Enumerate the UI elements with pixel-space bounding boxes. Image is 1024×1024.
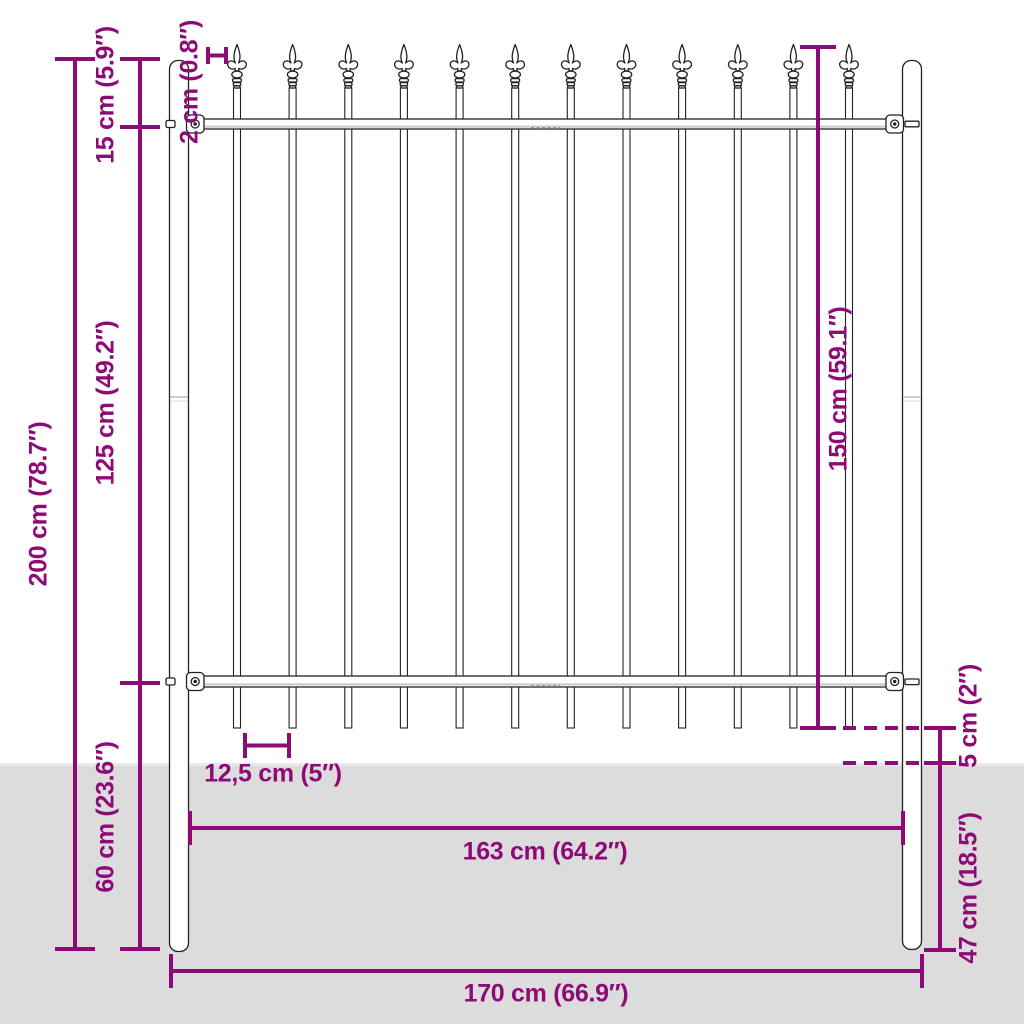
fence-bar	[456, 88, 463, 728]
post-joint-marks	[171, 397, 921, 401]
bottom-rail	[188, 676, 903, 687]
bars-group	[228, 45, 859, 729]
top-rail	[188, 119, 903, 129]
dim-label-bar-above-ground: 5 cm (2″)	[955, 664, 984, 768]
spear-finial-icon	[395, 45, 414, 89]
fence-bar	[289, 88, 296, 728]
spear-finial-icon	[840, 45, 859, 89]
rail-bolt	[905, 121, 919, 127]
fence-bar	[345, 88, 352, 728]
dim-label-overall-height: 200 cm (78.7″)	[25, 422, 54, 587]
fence-bar	[790, 88, 797, 728]
left-post	[170, 61, 189, 952]
spear-finial-icon	[450, 45, 469, 89]
fence-bar	[567, 88, 574, 728]
fence-bar	[623, 88, 630, 728]
dim-label-overall-width: 170 cm (66.9″)	[464, 980, 629, 1009]
dim-label-infill-height: 150 cm (59.1″)	[825, 307, 854, 472]
spear-finial-icon	[784, 45, 803, 89]
dim-bracket-bar-diameter	[208, 47, 226, 64]
rail-bolt	[166, 121, 175, 128]
dim-label-between-rails: 125 cm (49.2″)	[92, 321, 121, 486]
dim-label-bar-spacing: 12,5 cm (5″)	[204, 760, 342, 789]
fence-bar	[400, 88, 407, 728]
fence-dimension-diagram: 200 cm (78.7″) 15 cm (5.9″) 2 cm (0.8″) …	[0, 0, 1024, 1024]
dim-label-bar-diameter: 2 cm (0.8″)	[176, 20, 205, 144]
page: { "colors": { "dimension_magenta": "#8e0…	[0, 0, 1024, 1024]
dim-label-spear-height: 15 cm (5.9″)	[92, 26, 121, 164]
fence-bar	[512, 88, 519, 728]
spear-finial-icon	[673, 45, 692, 89]
spear-finial-icon	[728, 45, 747, 89]
right-post	[903, 61, 922, 950]
rail-bolt	[905, 679, 919, 685]
fence-bar	[679, 88, 686, 728]
dim-bracket-bar-spacing	[245, 733, 289, 758]
fence-bar	[734, 88, 741, 728]
spear-finial-icon	[561, 45, 580, 89]
rail-bolt	[166, 678, 175, 685]
fence-drawing	[0, 0, 1024, 1024]
fence-bar	[234, 88, 241, 728]
spear-finial-icon	[228, 45, 247, 89]
dim-label-below-bottom-rail: 60 cm (23.6″)	[92, 741, 121, 892]
dim-label-post-depth: 47 cm (18.5″)	[955, 812, 984, 963]
rail-clamps	[166, 115, 919, 691]
spear-finial-icon	[617, 45, 636, 89]
spear-finial-icon	[283, 45, 302, 89]
spear-finial-icon	[339, 45, 358, 89]
dim-label-inner-width: 163 cm (64.2″)	[463, 838, 628, 867]
spear-finial-icon	[506, 45, 525, 89]
